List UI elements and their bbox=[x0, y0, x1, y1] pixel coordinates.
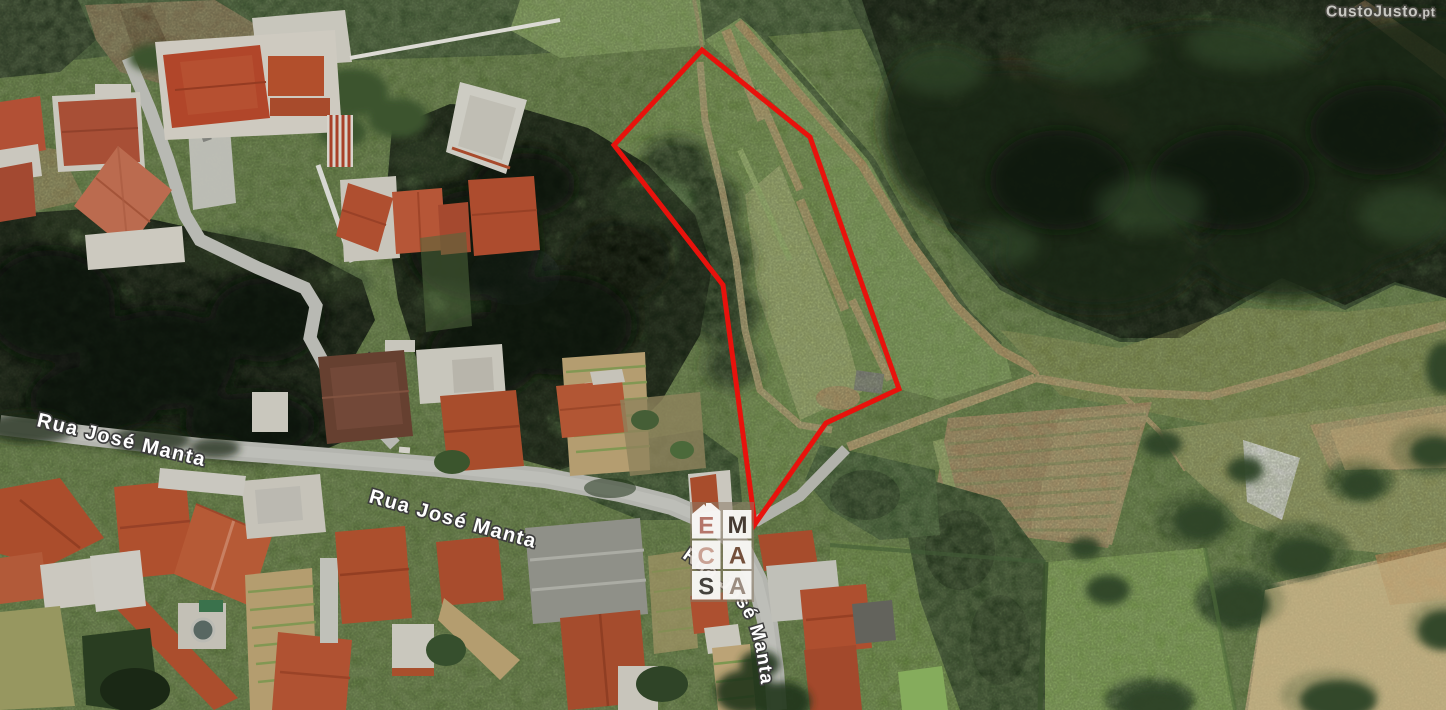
svg-text:A: A bbox=[729, 543, 746, 570]
svg-text:CustoJusto.pt: CustoJusto.pt bbox=[1326, 4, 1436, 21]
svg-text:A: A bbox=[729, 573, 746, 600]
svg-text:C: C bbox=[698, 543, 715, 570]
svg-text:M: M bbox=[728, 512, 748, 539]
svg-text:S: S bbox=[698, 574, 714, 601]
svg-text:E: E bbox=[698, 513, 714, 540]
